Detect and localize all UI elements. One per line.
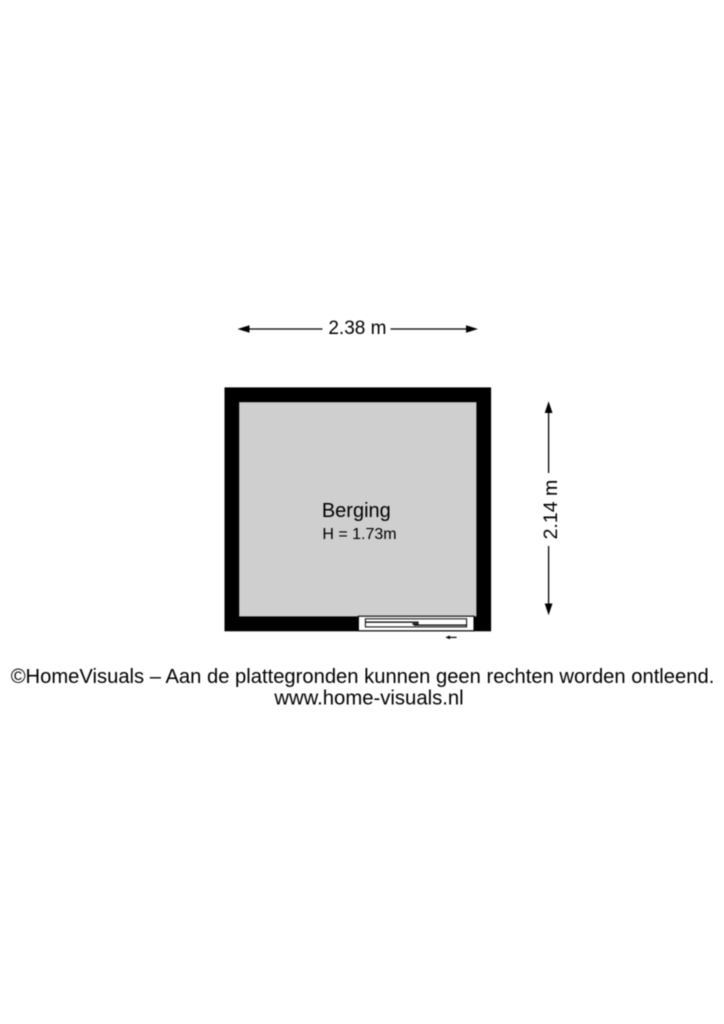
svg-text:www.home-visuals.nl: www.home-visuals.nl: [273, 688, 463, 710]
svg-text:Berging: Berging: [322, 500, 391, 522]
svg-text:H = 1.73m: H = 1.73m: [322, 526, 396, 543]
svg-text:2.14 m: 2.14 m: [540, 480, 562, 540]
svg-text:2.38 m: 2.38 m: [328, 318, 386, 339]
svg-text:©HomeVisuals – Aan de plattegr: ©HomeVisuals – Aan de plattegronden kunn…: [11, 666, 715, 688]
